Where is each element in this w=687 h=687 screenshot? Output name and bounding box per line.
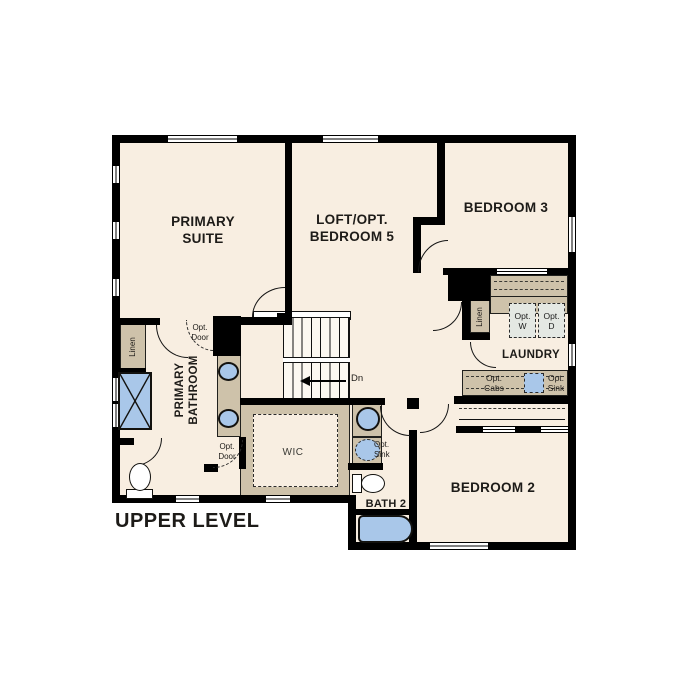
room-label-bath2: BATH 2 bbox=[356, 497, 416, 511]
window-right-bedroom3 bbox=[568, 217, 576, 252]
closet-door-gap-2 bbox=[541, 426, 568, 433]
toilet-bath2-bowl-icon bbox=[361, 474, 385, 493]
stairs-direction-line bbox=[309, 380, 346, 382]
wall-bath2-mid bbox=[348, 463, 383, 470]
room-label-bedroom2: BEDROOM 2 bbox=[423, 479, 563, 496]
opt-dryer-label: Opt. D bbox=[543, 311, 559, 331]
laundry-shelf bbox=[490, 275, 568, 297]
window-top-primary bbox=[168, 135, 237, 143]
window-bottom-bath bbox=[176, 495, 199, 503]
room-label-laundry: LAUNDRY bbox=[491, 348, 571, 362]
room-label-loft: LOFT/OPT. BEDROOM 5 bbox=[282, 211, 422, 245]
stair-landing-rail bbox=[283, 357, 350, 363]
window-bottom-wic bbox=[266, 495, 290, 503]
bath2-sink-icon bbox=[356, 407, 380, 431]
opt-door-lower-label: Opt. Door bbox=[210, 442, 244, 461]
room-label-primary-bathroom: PRIMARY BATHROOM bbox=[142, 330, 232, 450]
opt-dryer-box: Opt. D bbox=[538, 303, 565, 338]
opt-washer-box: Opt. W bbox=[509, 303, 536, 338]
wall-stub-toilet bbox=[118, 438, 134, 445]
opt-washer-label: Opt. W bbox=[514, 311, 530, 331]
linen-bath-label: Linen bbox=[122, 325, 144, 369]
room-label-bedroom3: BEDROOM 3 bbox=[436, 199, 576, 216]
toilet-bath-bowl-icon bbox=[129, 463, 151, 491]
linen-hall-label: Linen bbox=[470, 299, 490, 335]
room-label-wic: WIC bbox=[263, 444, 323, 461]
bedroom2-closet-band bbox=[456, 404, 568, 426]
plan-title: UPPER LEVEL bbox=[115, 513, 335, 530]
window-bottom-bedroom2 bbox=[430, 542, 488, 550]
opt-sink-bath2-label: Opt. Sink bbox=[374, 440, 402, 459]
opt-sink-laundry-label: Opt. Sink bbox=[542, 373, 570, 393]
wall-suite-bottom-a bbox=[112, 318, 160, 325]
laundry-opt-sink-icon bbox=[524, 373, 544, 393]
wall-exterior-right bbox=[568, 135, 576, 550]
room-label-primary-suite: PRIMARY SUITE bbox=[133, 213, 273, 247]
window-left-1 bbox=[112, 166, 120, 183]
opt-door-upper-label: Opt. Door bbox=[183, 323, 217, 342]
window-top-loft bbox=[323, 135, 378, 143]
opt-cabs-label: Opt. Cabs bbox=[477, 373, 511, 393]
closet-door-gap-1 bbox=[483, 426, 515, 433]
floor-plan-upper-level: PRIMARY SUITE LOFT/OPT. BEDROOM 5 BEDROO… bbox=[0, 0, 687, 687]
window-bedroom3-interior bbox=[497, 268, 547, 275]
window-left-2 bbox=[112, 222, 120, 239]
stairs-down-label: Dn bbox=[351, 374, 371, 384]
bathtub-icon bbox=[358, 515, 413, 543]
wall-bedroom2-closet-top bbox=[454, 396, 568, 404]
window-left-3 bbox=[112, 279, 120, 296]
stairs-direction-arrow-icon bbox=[300, 376, 310, 386]
wall-wic-top bbox=[240, 398, 385, 405]
